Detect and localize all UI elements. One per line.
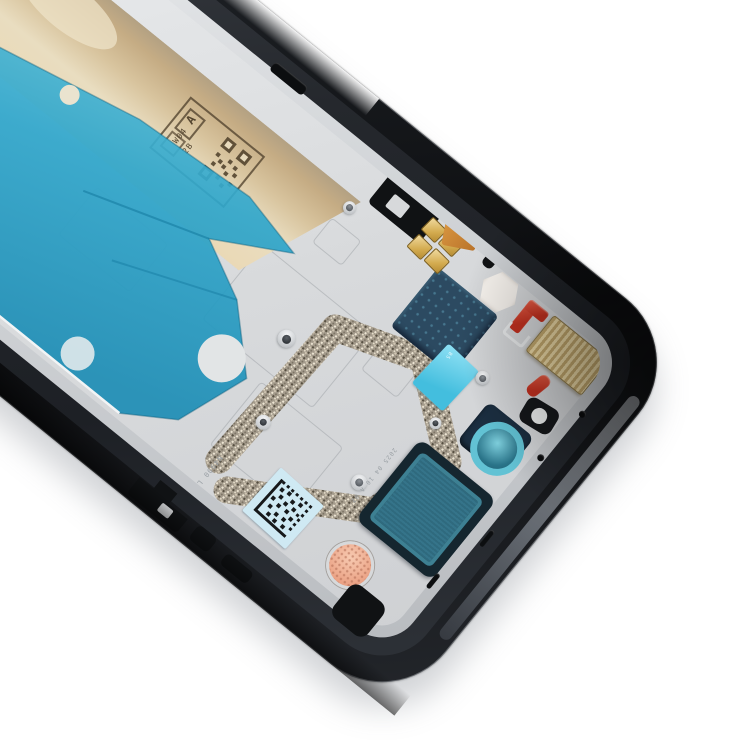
cutout-notch	[385, 194, 411, 219]
phone-middle-frame: A W04 2B	[0, 0, 690, 716]
product-photo-scene: A W04 2B	[0, 0, 750, 750]
